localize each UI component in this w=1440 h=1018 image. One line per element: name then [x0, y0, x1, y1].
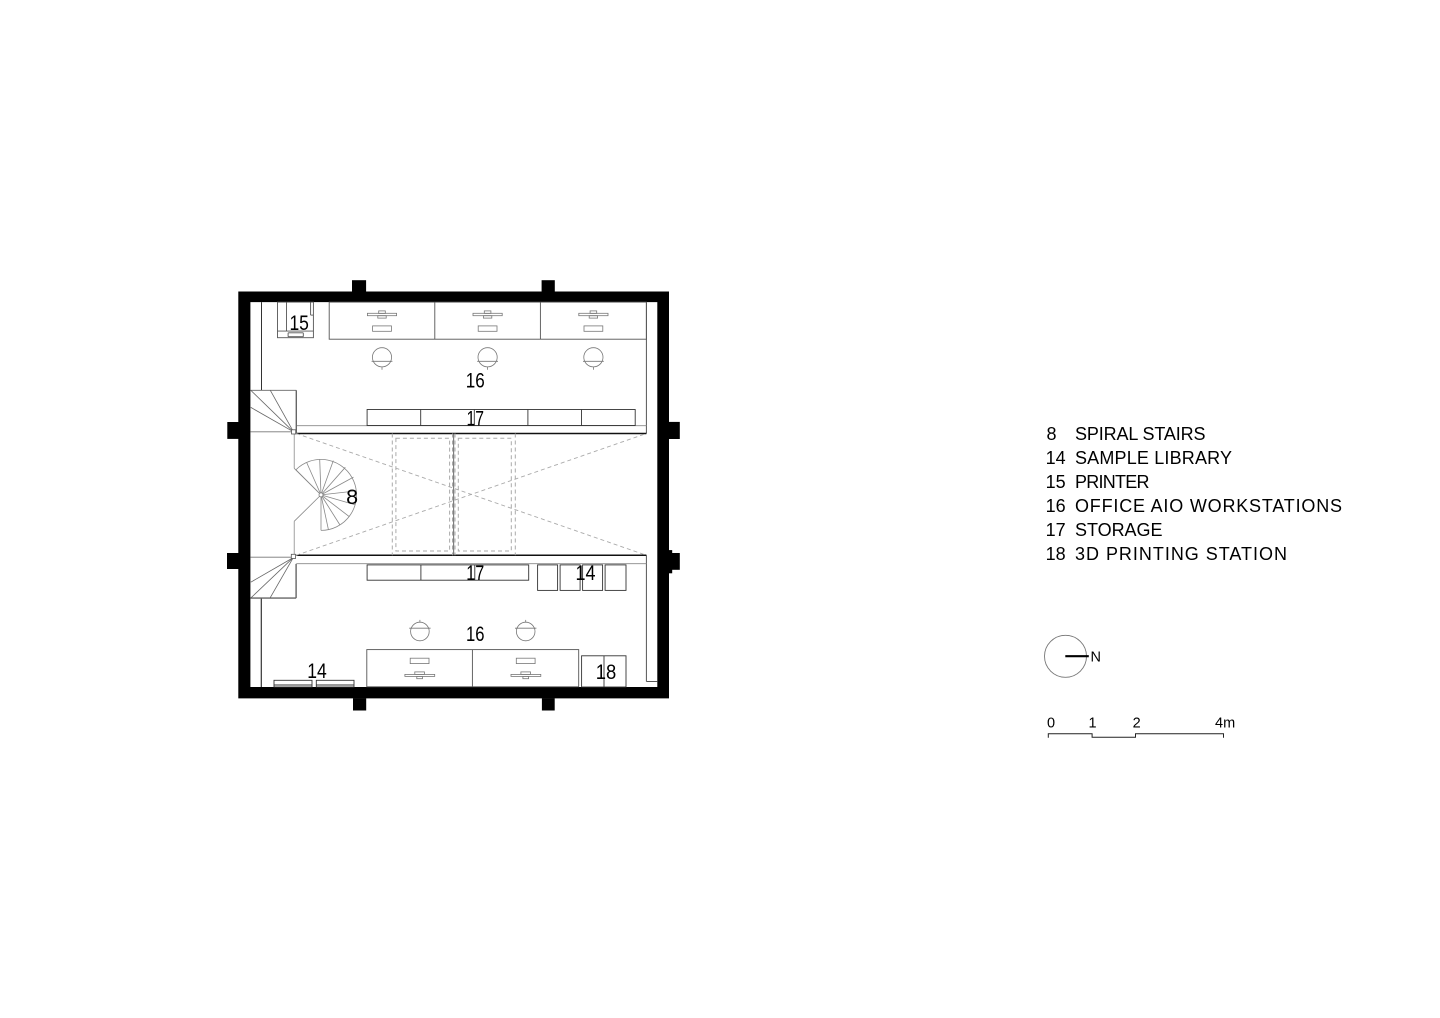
- svg-text:SPIRAL STAIRS: SPIRAL STAIRS: [1075, 424, 1206, 444]
- svg-text:PRINTER: PRINTER: [1075, 472, 1150, 492]
- svg-text:14: 14: [576, 561, 596, 585]
- svg-text:15: 15: [289, 311, 309, 335]
- svg-text:SAMPLE LIBRARY: SAMPLE LIBRARY: [1075, 448, 1232, 468]
- svg-text:4m: 4m: [1215, 716, 1235, 732]
- svg-text:14: 14: [307, 659, 327, 683]
- svg-text:1: 1: [1089, 716, 1097, 732]
- svg-text:18: 18: [1046, 544, 1066, 564]
- svg-text:16: 16: [466, 622, 485, 646]
- svg-text:2: 2: [1133, 716, 1141, 732]
- svg-text:18: 18: [596, 660, 617, 684]
- svg-text:15: 15: [1046, 472, 1066, 492]
- svg-text:14: 14: [1046, 448, 1066, 468]
- svg-text:OFFICE AIO WORKSTATIONS: OFFICE AIO WORKSTATIONS: [1075, 496, 1342, 516]
- svg-text:17: 17: [1046, 520, 1066, 540]
- svg-text:N: N: [1091, 649, 1101, 665]
- svg-text:17: 17: [466, 561, 484, 585]
- svg-text:0: 0: [1047, 716, 1055, 732]
- svg-text:3D PRINTING STATION: 3D PRINTING STATION: [1075, 544, 1287, 564]
- svg-text:8: 8: [346, 485, 358, 509]
- svg-text:STORAGE: STORAGE: [1075, 520, 1163, 540]
- svg-text:16: 16: [466, 369, 485, 393]
- svg-text:17: 17: [467, 406, 485, 430]
- svg-text:16: 16: [1046, 496, 1066, 516]
- svg-text:8: 8: [1047, 424, 1057, 444]
